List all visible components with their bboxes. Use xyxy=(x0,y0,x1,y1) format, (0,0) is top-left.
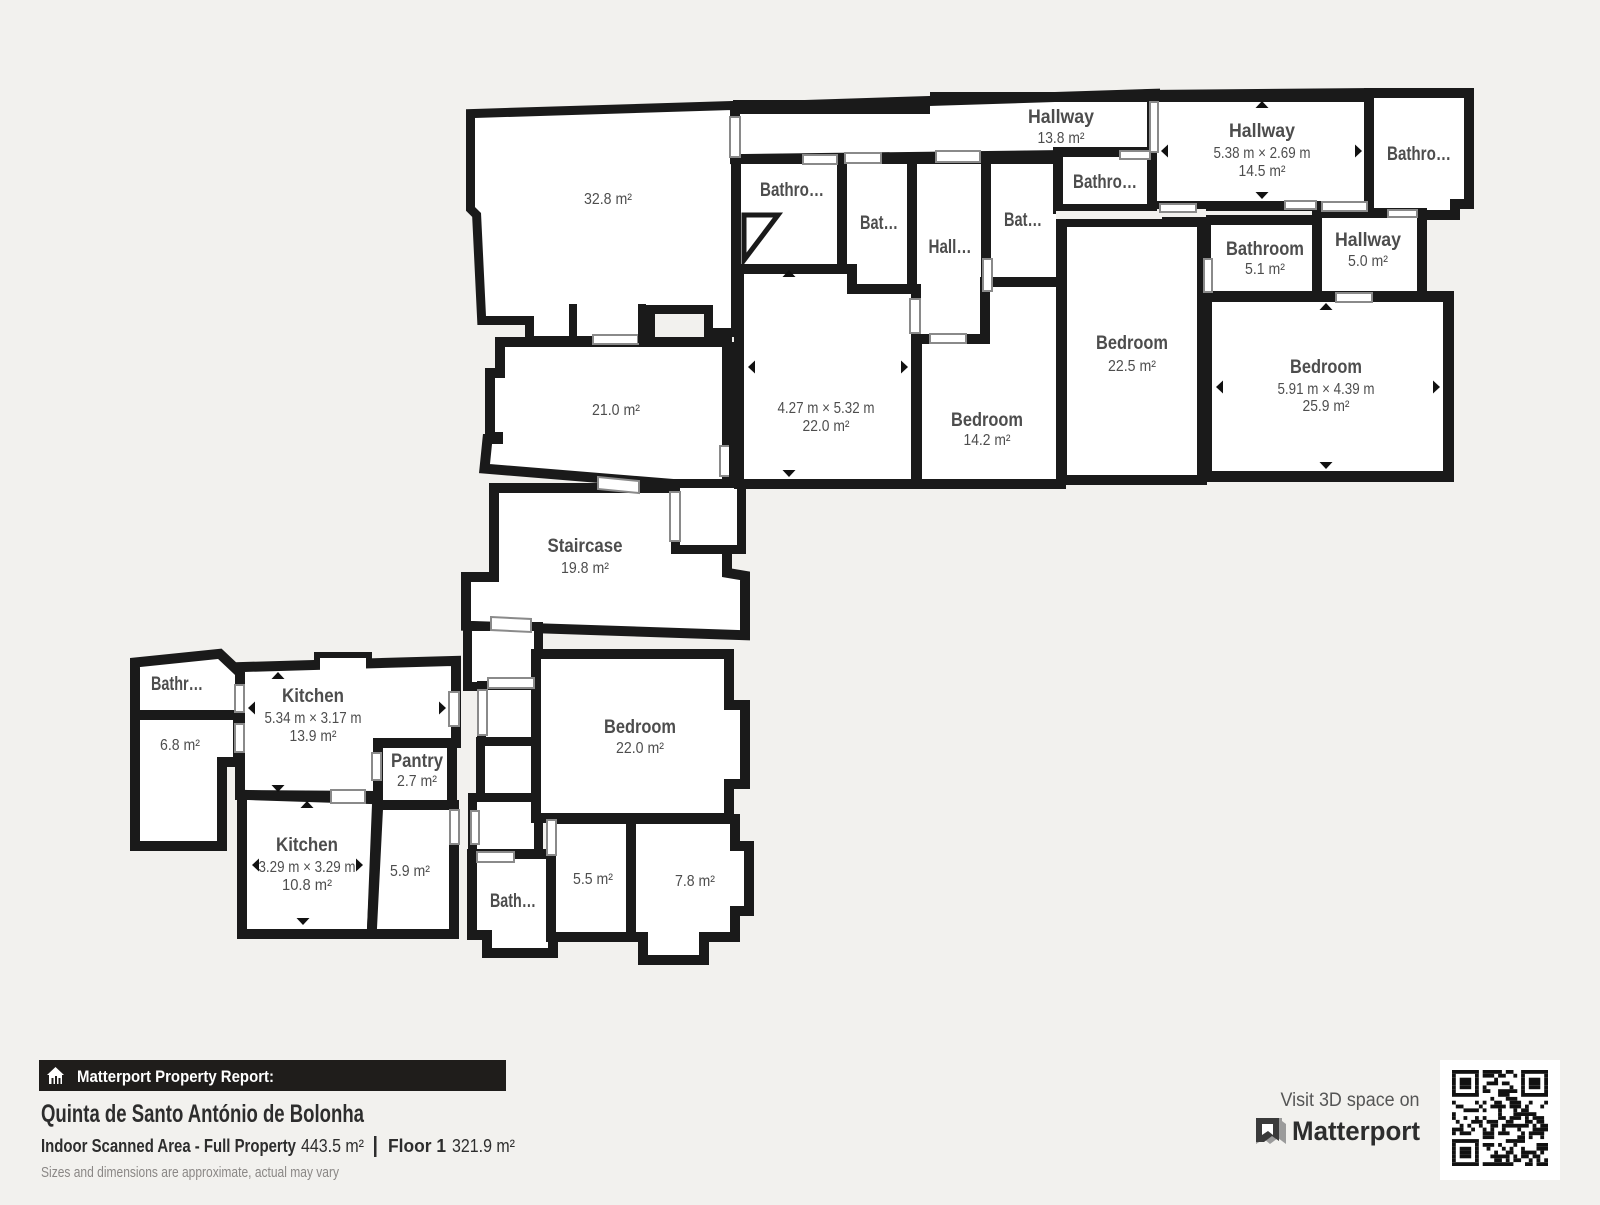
svg-text:Matterport Property Report:: Matterport Property Report: xyxy=(77,1067,274,1086)
svg-text:Sizes and dimensions are appro: Sizes and dimensions are approximate, ac… xyxy=(41,1164,339,1181)
svg-text:Bathro…: Bathro… xyxy=(760,180,824,201)
svg-text:Visit 3D space on: Visit 3D space on xyxy=(1281,1090,1420,1111)
svg-text:4.27 m × 5.32 m: 4.27 m × 5.32 m xyxy=(778,400,875,417)
svg-text:5.0 m²: 5.0 m² xyxy=(1348,253,1388,270)
svg-text:Bedroom: Bedroom xyxy=(1290,357,1362,378)
svg-text:Bathroom: Bathroom xyxy=(1226,239,1304,260)
svg-text:10.8 m²: 10.8 m² xyxy=(282,877,332,894)
svg-text:22.5 m²: 22.5 m² xyxy=(1108,358,1156,375)
svg-text:7.8 m²: 7.8 m² xyxy=(675,873,715,890)
svg-text:Bathro…: Bathro… xyxy=(1073,172,1137,193)
svg-text:Quinta de Santo António de Bol: Quinta de Santo António de Bolonha xyxy=(41,1100,365,1128)
svg-text:321.9 m²: 321.9 m² xyxy=(452,1136,515,1156)
svg-text:5.34 m × 3.17 m: 5.34 m × 3.17 m xyxy=(265,710,362,727)
svg-text:Bedroom: Bedroom xyxy=(1096,333,1168,354)
svg-text:443.5 m²: 443.5 m² xyxy=(301,1136,364,1156)
svg-text:5.1 m²: 5.1 m² xyxy=(1245,261,1285,278)
svg-text:Bat…: Bat… xyxy=(860,213,898,234)
svg-text:25.9 m²: 25.9 m² xyxy=(1303,398,1350,415)
svg-text:Indoor Scanned Area - Full Pro: Indoor Scanned Area - Full Property xyxy=(41,1136,296,1156)
svg-text:5.5 m²: 5.5 m² xyxy=(573,871,613,888)
svg-text:Floor 1: Floor 1 xyxy=(388,1136,446,1156)
svg-text:13.8 m²: 13.8 m² xyxy=(1038,130,1085,147)
svg-text:Staircase: Staircase xyxy=(548,536,623,557)
svg-text:5.91 m × 4.39 m: 5.91 m × 4.39 m xyxy=(1278,381,1375,398)
svg-text:19.8 m²: 19.8 m² xyxy=(561,560,609,577)
svg-text:32.8 m²: 32.8 m² xyxy=(584,191,632,208)
svg-text:Kitchen: Kitchen xyxy=(282,686,344,707)
svg-text:Hallway: Hallway xyxy=(1335,230,1401,251)
svg-text:13.9 m²: 13.9 m² xyxy=(290,728,337,745)
svg-text:Hallway: Hallway xyxy=(1028,107,1094,128)
svg-text:14.5 m²: 14.5 m² xyxy=(1239,163,1286,180)
svg-text:21.0 m²: 21.0 m² xyxy=(592,402,640,419)
svg-text:Matterport: Matterport xyxy=(1292,1116,1420,1146)
svg-text:2.7 m²: 2.7 m² xyxy=(397,773,437,790)
svg-text:5.9 m²: 5.9 m² xyxy=(390,863,430,880)
svg-text:22.0 m²: 22.0 m² xyxy=(803,418,850,435)
svg-text:6.8 m²: 6.8 m² xyxy=(160,737,200,754)
svg-text:Bathro…: Bathro… xyxy=(1387,144,1451,165)
svg-text:Kitchen: Kitchen xyxy=(276,835,338,856)
svg-text:Bat…: Bat… xyxy=(1004,210,1042,231)
svg-text:5.38 m × 2.69 m: 5.38 m × 2.69 m xyxy=(1214,145,1311,162)
svg-text:14.2 m²: 14.2 m² xyxy=(964,432,1011,449)
svg-text:Pantry: Pantry xyxy=(391,751,443,772)
svg-text:22.0 m²: 22.0 m² xyxy=(616,740,664,757)
svg-text:3.29 m × 3.29 m: 3.29 m × 3.29 m xyxy=(259,859,356,876)
svg-text:Bedroom: Bedroom xyxy=(604,717,676,738)
svg-text:Bathr…: Bathr… xyxy=(151,674,203,695)
svg-text:Bath…: Bath… xyxy=(490,891,536,912)
svg-text:Hall…: Hall… xyxy=(929,237,972,258)
svg-text:Hallway: Hallway xyxy=(1229,121,1295,142)
svg-text:Bedroom: Bedroom xyxy=(951,410,1023,431)
